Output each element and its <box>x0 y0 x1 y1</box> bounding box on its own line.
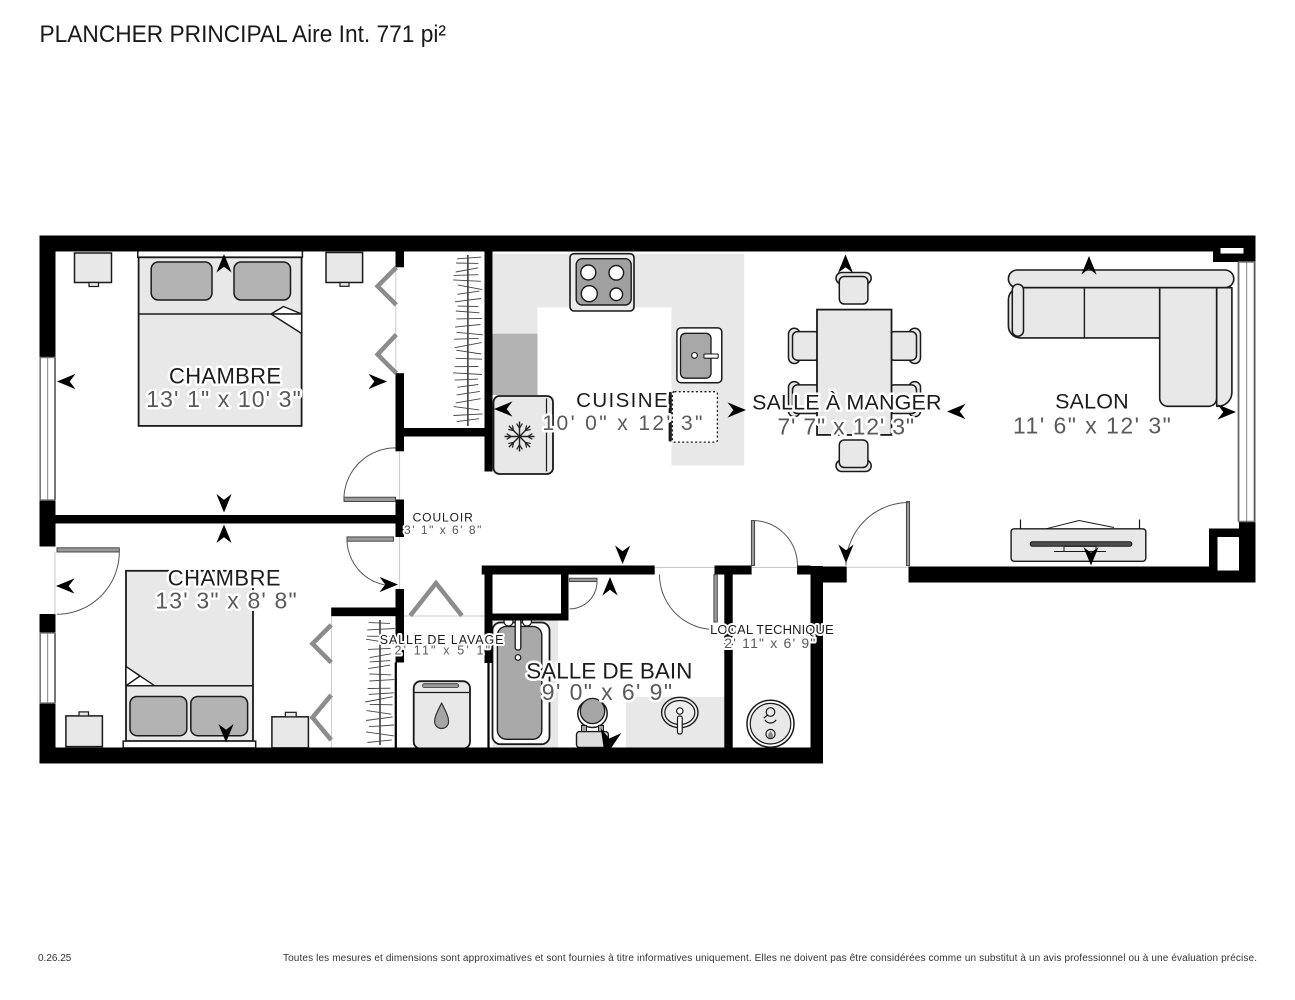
svg-text:3' 1" x 6' 8": 3' 1" x 6' 8" <box>404 523 481 537</box>
svg-text:10' 0" x 12' 3": 10' 0" x 12' 3" <box>543 412 703 435</box>
svg-text:2' 11" x 6' 9": 2' 11" x 6' 9" <box>724 635 815 651</box>
svg-text:13' 1" x 10' 3": 13' 1" x 10' 3" <box>146 386 301 412</box>
svg-text:CHAMBRE: CHAMBRE <box>169 364 281 389</box>
svg-text:7' 7" x 12' 3": 7' 7" x 12' 3" <box>777 414 914 440</box>
svg-text:SALLE À MANGER: SALLE À MANGER <box>752 390 941 415</box>
svg-text:2' 11" x 5' 1": 2' 11" x 5' 1" <box>395 644 491 658</box>
svg-text:13' 3" x 8' 8": 13' 3" x 8' 8" <box>155 587 296 613</box>
svg-text:0.26.25: 0.26.25 <box>38 953 72 964</box>
svg-text:9' 0" x 6' 9": 9' 0" x 6' 9" <box>542 679 672 705</box>
svg-text:SALON: SALON <box>1055 390 1129 414</box>
svg-text:Toutes les mesures et dimensio: Toutes les mesures et dimensions sont ap… <box>283 953 1257 964</box>
svg-text:CUISINE: CUISINE <box>576 389 668 412</box>
svg-text:PLANCHER PRINCIPAL Aire Int. 7: PLANCHER PRINCIPAL Aire Int. 771 pi² <box>40 21 447 48</box>
